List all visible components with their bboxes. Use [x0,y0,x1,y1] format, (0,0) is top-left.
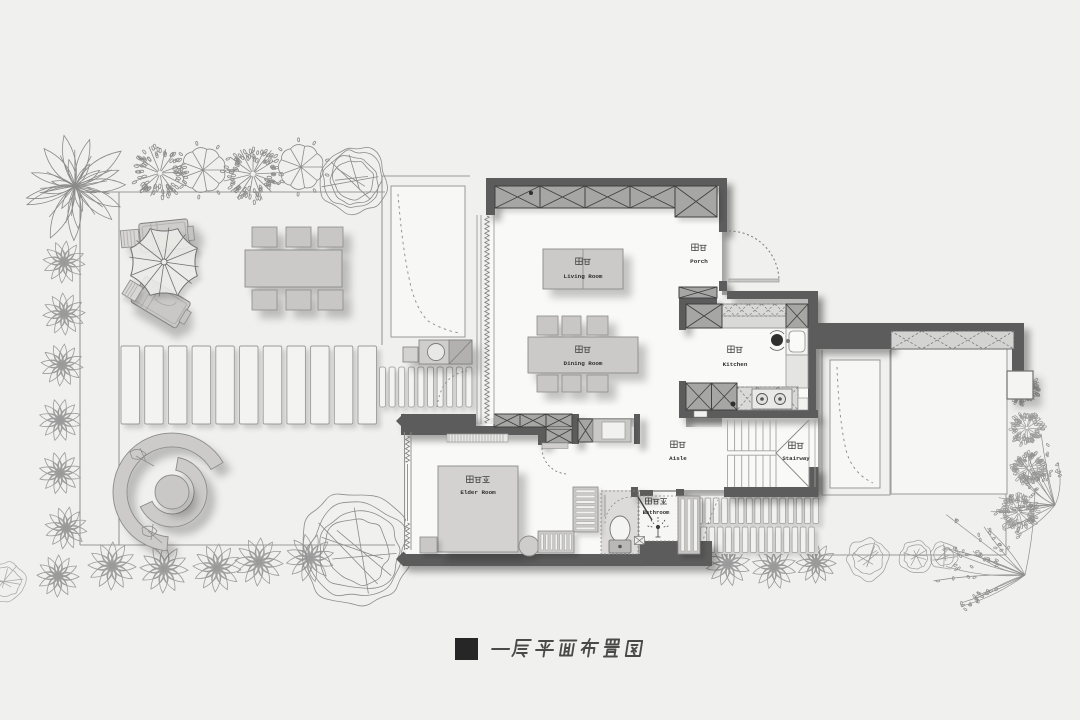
svg-text:Dining Room: Dining Room [564,360,603,367]
svg-text:Kitchen: Kitchen [723,361,748,368]
svg-text:Bathroom: Bathroom [643,509,670,516]
svg-text:Elder Room: Elder Room [460,489,496,496]
svg-text:Stairway: Stairway [782,455,810,462]
svg-text:Aisle: Aisle [669,455,687,462]
svg-text:Porch: Porch [690,258,708,265]
svg-text:Living Room: Living Room [564,273,603,280]
